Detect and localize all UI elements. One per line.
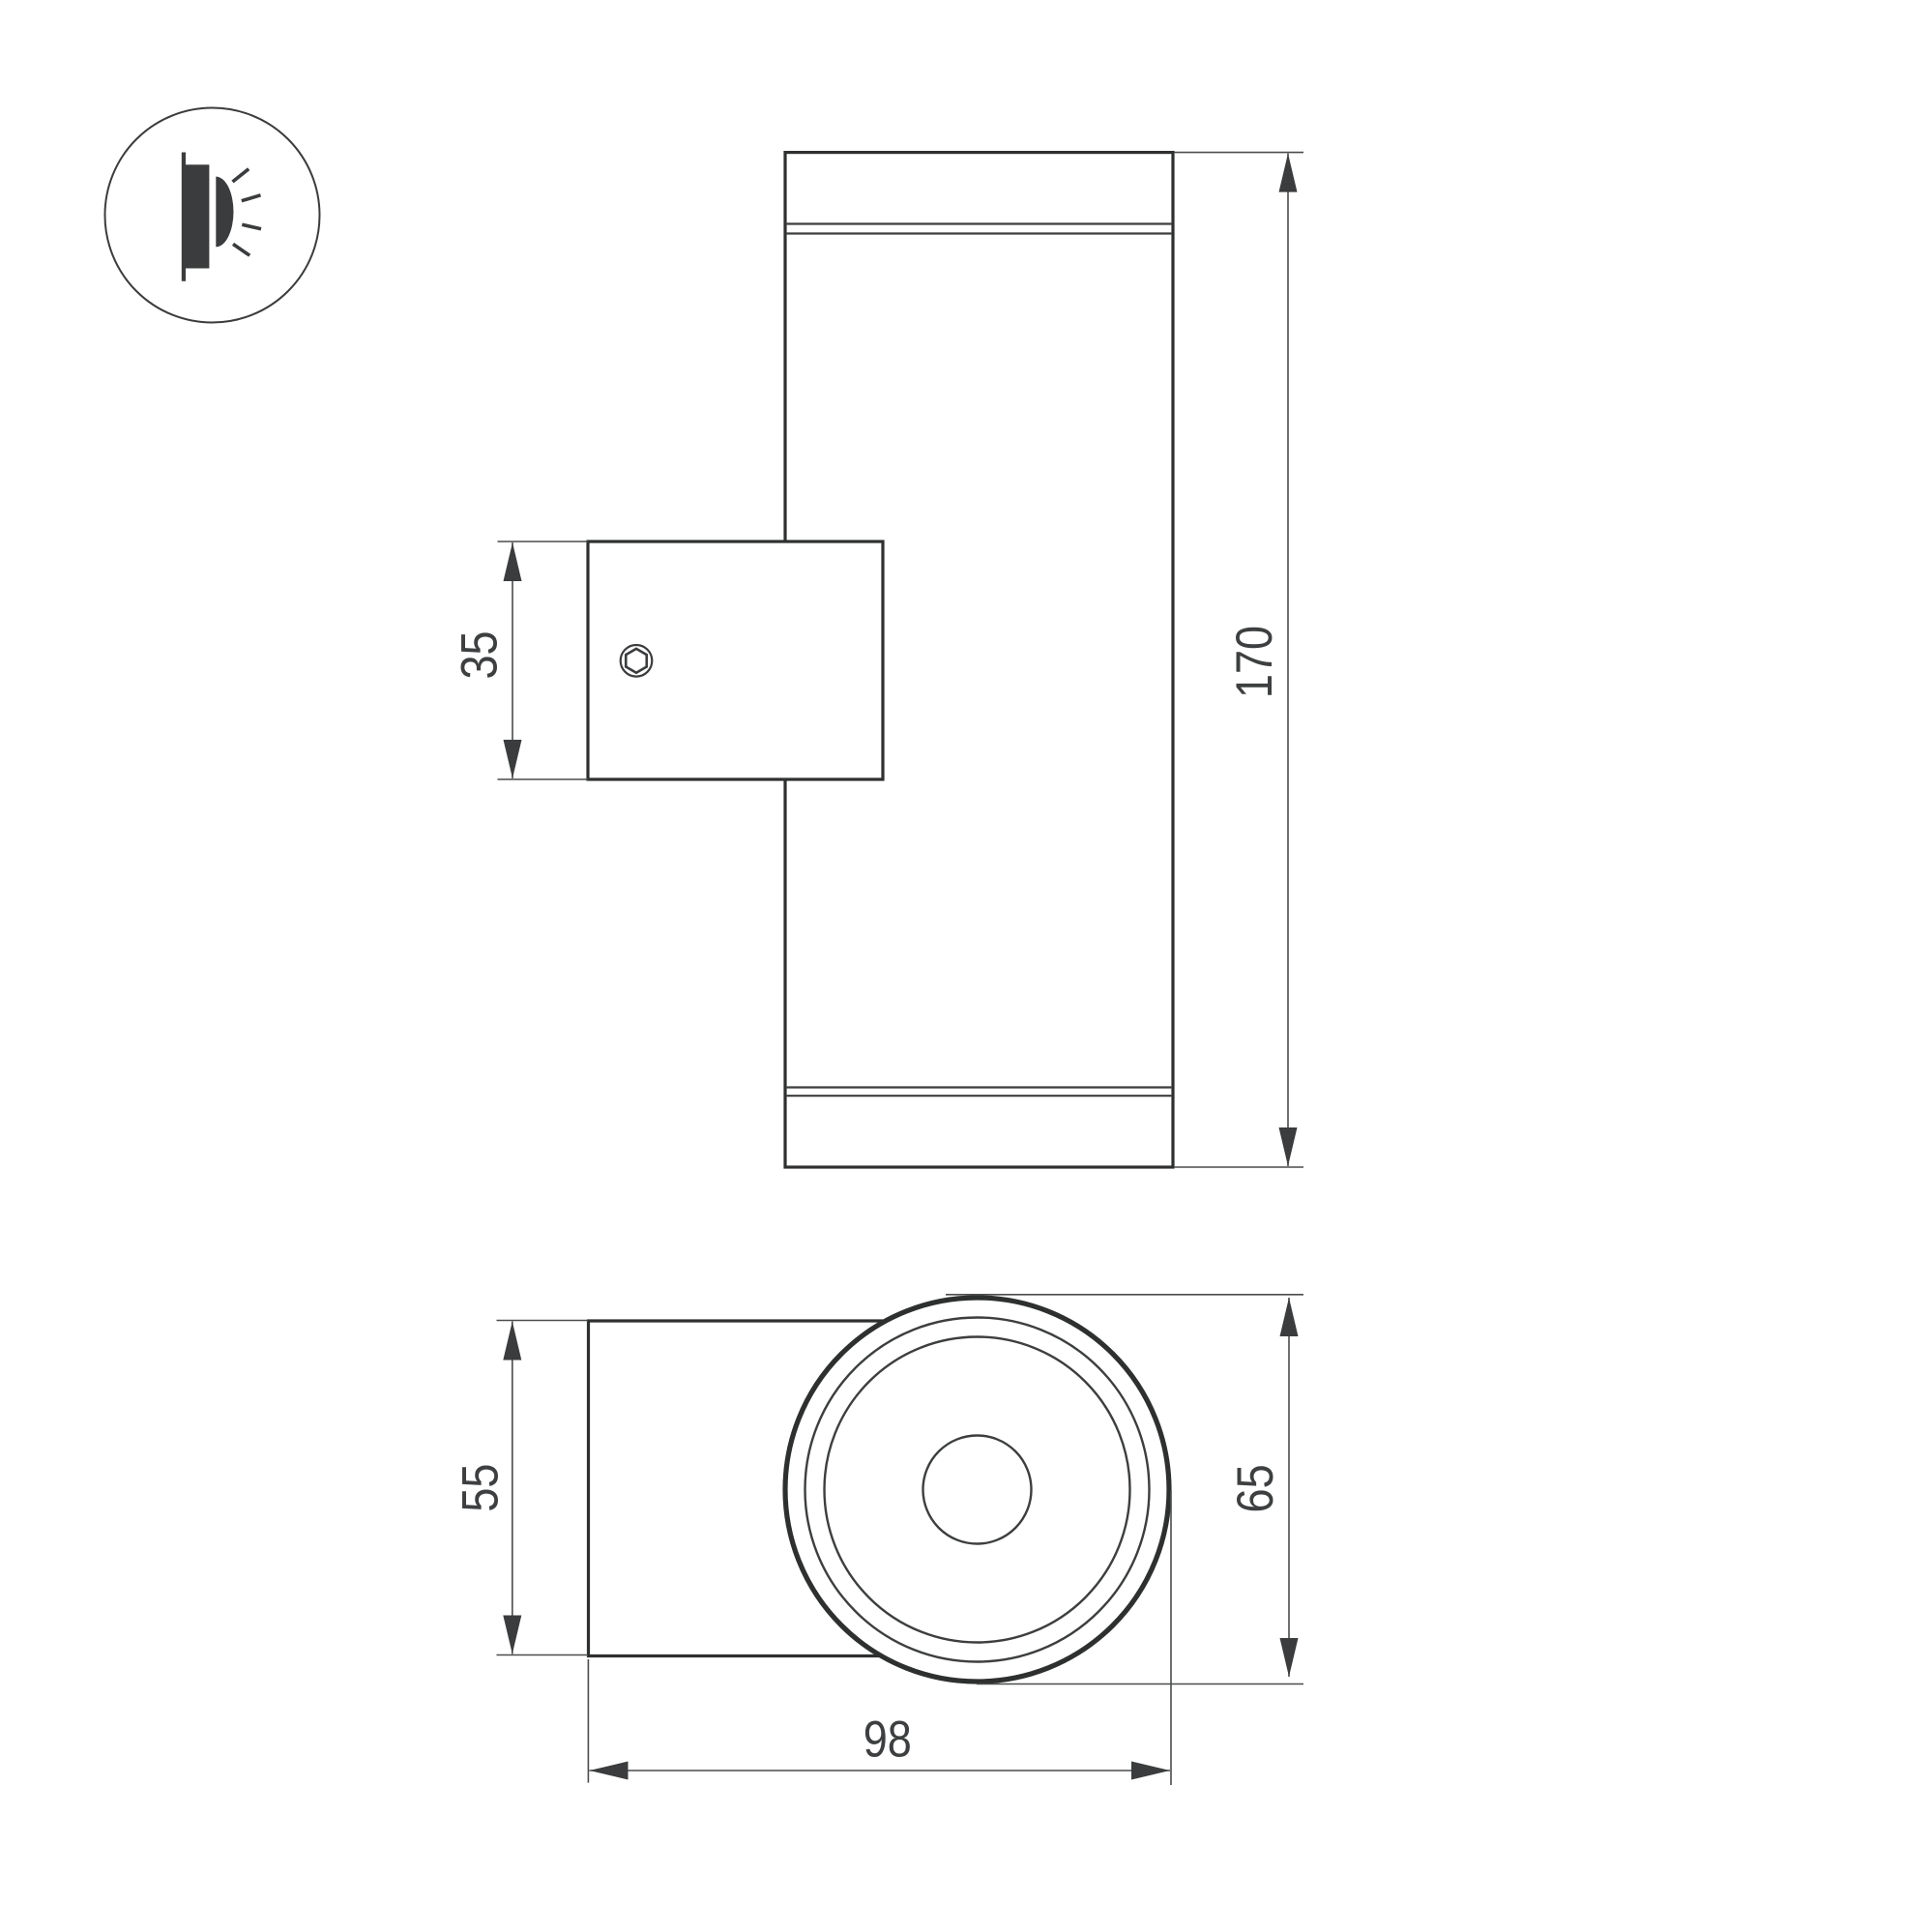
svg-text:170: 170 [1225,626,1282,698]
svg-text:65: 65 [1227,1464,1284,1512]
svg-text:35: 35 [451,630,508,679]
svg-text:98: 98 [864,1711,912,1768]
svg-text:55: 55 [452,1464,509,1512]
